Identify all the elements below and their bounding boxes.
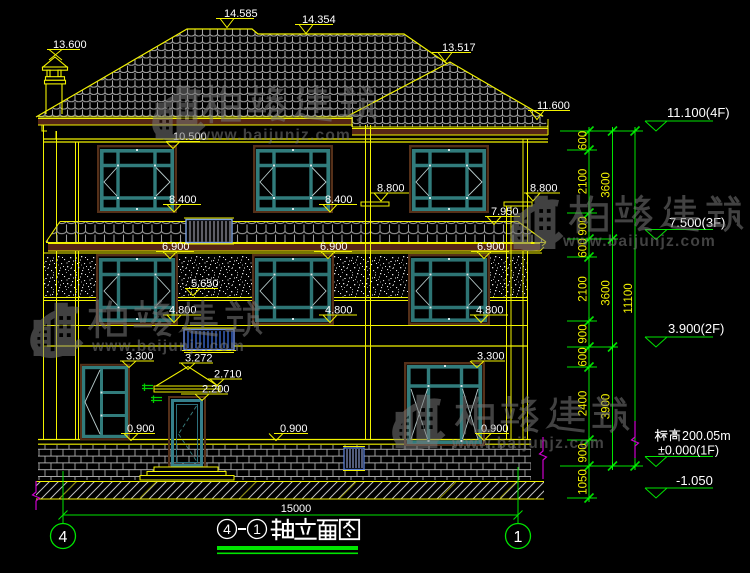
svg-text:3600: 3600 bbox=[601, 172, 613, 198]
svg-text:1: 1 bbox=[253, 521, 261, 537]
svg-text:3600: 3600 bbox=[601, 280, 613, 306]
svg-text:600: 600 bbox=[578, 347, 590, 366]
svg-text:2100: 2100 bbox=[578, 169, 590, 195]
svg-text:www.baijunjz.com: www.baijunjz.com bbox=[451, 435, 605, 452]
svg-text:www.baijunjz.com: www.baijunjz.com bbox=[562, 233, 716, 250]
svg-text:2100: 2100 bbox=[578, 276, 590, 302]
svg-text:1050: 1050 bbox=[578, 469, 590, 495]
svg-text:200.05m: 200.05m bbox=[682, 429, 731, 443]
svg-text:www.baijunjz.com: www.baijunjz.com bbox=[91, 338, 245, 355]
svg-text:3.900(2F): 3.900(2F) bbox=[668, 321, 724, 336]
svg-text:600: 600 bbox=[578, 131, 590, 150]
svg-text:11100: 11100 bbox=[623, 283, 635, 313]
svg-text:15000: 15000 bbox=[281, 503, 312, 515]
svg-text:±0.000(1F): ±0.000(1F) bbox=[658, 444, 719, 458]
svg-text:4: 4 bbox=[59, 529, 68, 546]
svg-text:-1.050: -1.050 bbox=[676, 473, 713, 488]
svg-text:www.baijunjz.com: www.baijunjz.com bbox=[197, 127, 351, 144]
svg-text:900: 900 bbox=[578, 324, 590, 343]
svg-text:1: 1 bbox=[514, 529, 523, 546]
svg-text:11.100(4F): 11.100(4F) bbox=[667, 105, 730, 120]
svg-text:4: 4 bbox=[223, 521, 231, 537]
